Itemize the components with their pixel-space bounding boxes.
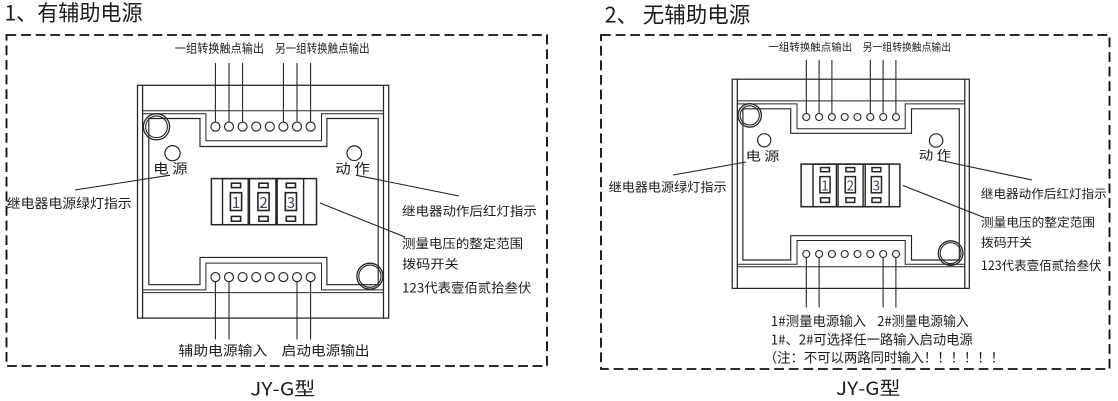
svg-text:JY-G型: JY-G型 bbox=[250, 375, 315, 401]
svg-text:辅助电源输入: 辅助电源输入 bbox=[178, 340, 267, 360]
svg-text:动 作: 动 作 bbox=[335, 157, 370, 177]
svg-text:1、有辅助电源: 1、有辅助电源 bbox=[5, 0, 143, 27]
svg-text:2#测量电源输入: 2#测量电源输入 bbox=[877, 310, 969, 330]
svg-text:启动电源输出: 启动电源输出 bbox=[282, 340, 370, 360]
svg-text:3: 3 bbox=[287, 192, 295, 213]
svg-text:继电器动作后红灯指示: 继电器动作后红灯指示 bbox=[402, 200, 537, 219]
svg-text:继电器电源绿灯指示: 继电器电源绿灯指示 bbox=[7, 193, 132, 212]
svg-text:拨码开关: 拨码开关 bbox=[402, 254, 459, 273]
svg-text:3: 3 bbox=[873, 174, 880, 194]
svg-text:动 作: 动 作 bbox=[919, 144, 952, 163]
svg-text:1: 1 bbox=[821, 174, 828, 194]
svg-text:JY-G型: JY-G型 bbox=[836, 374, 900, 401]
svg-text:123代表壹佰贰拾叁伏: 123代表壹佰贰拾叁伏 bbox=[402, 278, 531, 297]
svg-text:2: 2 bbox=[847, 174, 854, 194]
svg-text:一组转换触点输出: 一组转换触点输出 bbox=[768, 40, 852, 55]
svg-text:1#测量电源输入: 1#测量电源输入 bbox=[771, 310, 866, 330]
svg-text:另一组转换触点输出: 另一组转换触点输出 bbox=[275, 39, 369, 56]
svg-text:测量电压的整定范围: 测量电压的整定范围 bbox=[981, 213, 1095, 231]
svg-text:1: 1 bbox=[232, 192, 240, 213]
svg-text:另一组转换触点输出: 另一组转换触点输出 bbox=[863, 40, 951, 55]
svg-text:2、 无辅助电源: 2、 无辅助电源 bbox=[605, 0, 751, 30]
svg-text:测量电压的整定范围: 测量电压的整定范围 bbox=[402, 233, 523, 252]
svg-text:继电器动作后红灯指示: 继电器动作后红灯指示 bbox=[981, 184, 1107, 202]
svg-text:123代表壹佰贰拾叁伏: 123代表壹佰贰拾叁伏 bbox=[981, 255, 1102, 274]
svg-text:（注：不可以两路同时输入！！！！！！: （注：不可以两路同时输入！！！！！！ bbox=[764, 347, 1004, 367]
svg-text:电 源: 电 源 bbox=[153, 157, 188, 177]
svg-text:电 源: 电 源 bbox=[746, 146, 780, 165]
svg-text:2: 2 bbox=[259, 192, 267, 213]
svg-text:一组转换触点输出: 一组转换触点输出 bbox=[175, 39, 264, 56]
svg-text:继电器电源绿灯指示: 继电器电源绿灯指示 bbox=[609, 177, 727, 196]
svg-text:拨码开关: 拨码开关 bbox=[981, 232, 1032, 250]
